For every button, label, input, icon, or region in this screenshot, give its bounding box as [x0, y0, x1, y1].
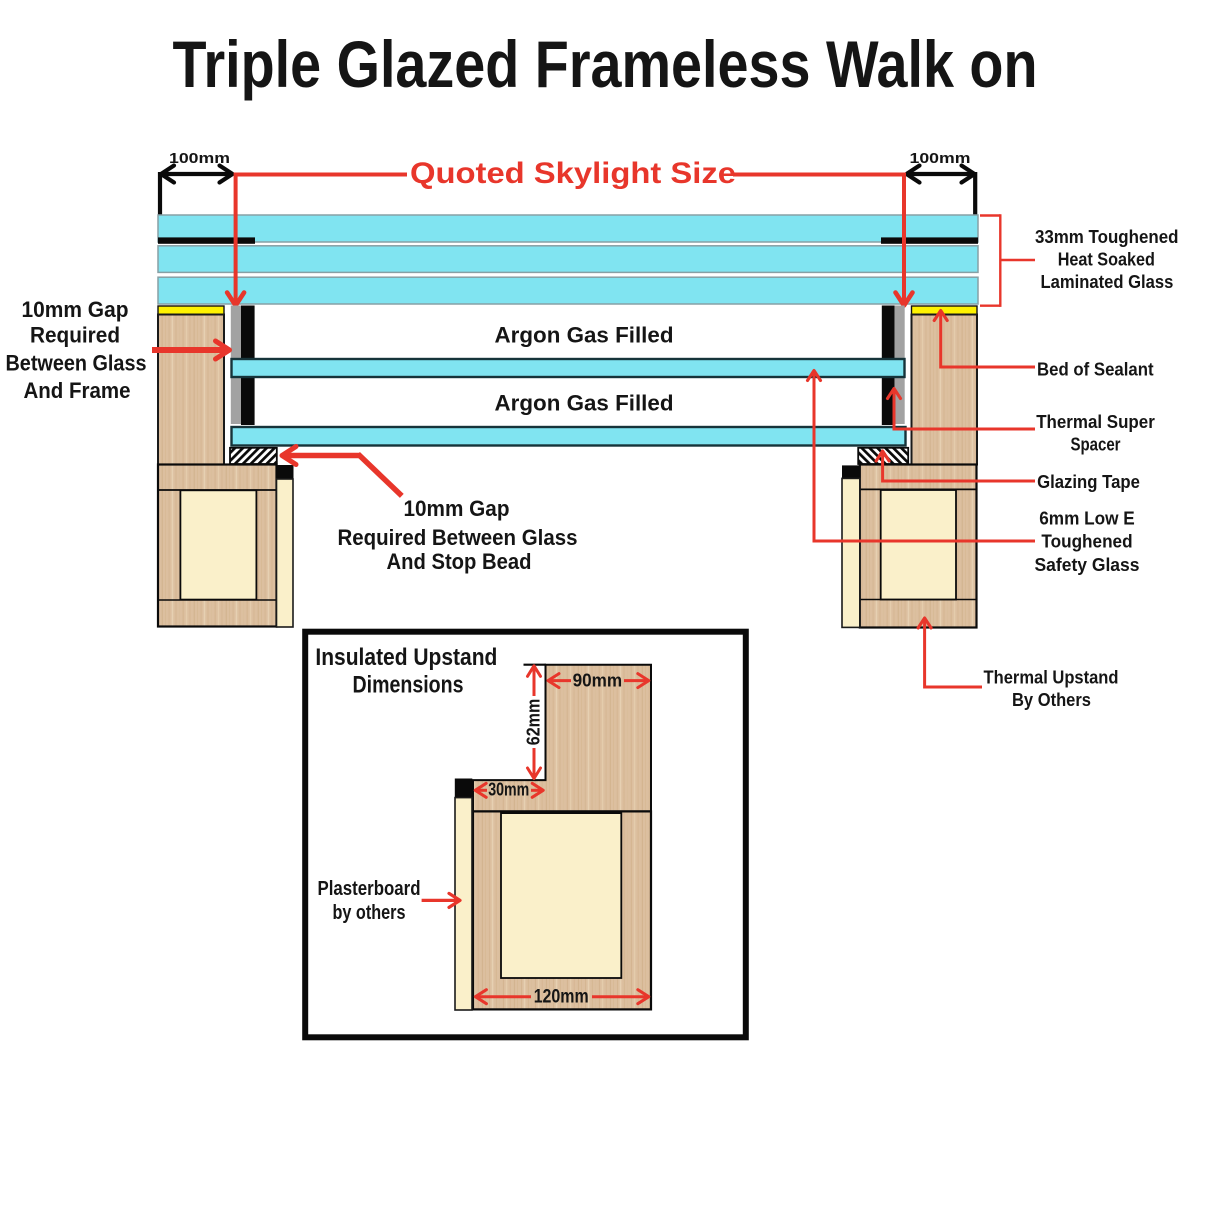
svg-text:Required Between Glass: Required Between Glass: [338, 525, 578, 550]
svg-text:Quoted Skylight Size: Quoted Skylight Size: [410, 158, 736, 190]
svg-text:And Stop Bead: And Stop Bead: [387, 549, 532, 574]
svg-text:Spacer: Spacer: [1070, 434, 1121, 455]
svg-text:Laminated Glass: Laminated Glass: [1041, 271, 1174, 292]
svg-text:62mm: 62mm: [523, 699, 544, 746]
svg-text:And Frame: And Frame: [24, 378, 131, 403]
svg-text:Thermal Super: Thermal Super: [1036, 411, 1155, 432]
svg-text:By Others: By Others: [1012, 689, 1091, 710]
svg-text:10mm Gap: 10mm Gap: [404, 496, 510, 521]
svg-text:Heat Soaked: Heat Soaked: [1058, 249, 1155, 270]
svg-text:Argon Gas Filled: Argon Gas Filled: [495, 323, 674, 348]
svg-text:Plasterboard: Plasterboard: [318, 878, 421, 900]
svg-text:Dimensions: Dimensions: [353, 671, 464, 698]
svg-text:120mm: 120mm: [534, 987, 589, 1008]
svg-text:Insulated Upstand: Insulated Upstand: [315, 644, 497, 671]
svg-text:by others: by others: [333, 902, 406, 924]
svg-text:Between Glass: Between Glass: [6, 350, 147, 375]
svg-text:Required: Required: [30, 323, 120, 348]
svg-text:Bed of Sealant: Bed of Sealant: [1037, 359, 1154, 380]
svg-text:Triple Glazed Frameless Walk o: Triple Glazed Frameless Walk on: [173, 28, 1038, 101]
svg-text:Argon Gas Filled: Argon Gas Filled: [495, 391, 674, 416]
svg-text:10mm Gap: 10mm Gap: [22, 297, 129, 322]
svg-text:6mm Low E: 6mm Low E: [1039, 508, 1135, 529]
svg-text:33mm Toughened: 33mm Toughened: [1035, 226, 1179, 247]
svg-text:Safety Glass: Safety Glass: [1035, 554, 1140, 575]
svg-text:Thermal Upstand: Thermal Upstand: [984, 667, 1119, 688]
svg-text:Toughened: Toughened: [1041, 531, 1132, 552]
svg-text:30mm: 30mm: [488, 779, 529, 800]
svg-text:Glazing Tape: Glazing Tape: [1037, 471, 1140, 492]
svg-text:90mm: 90mm: [573, 670, 623, 691]
